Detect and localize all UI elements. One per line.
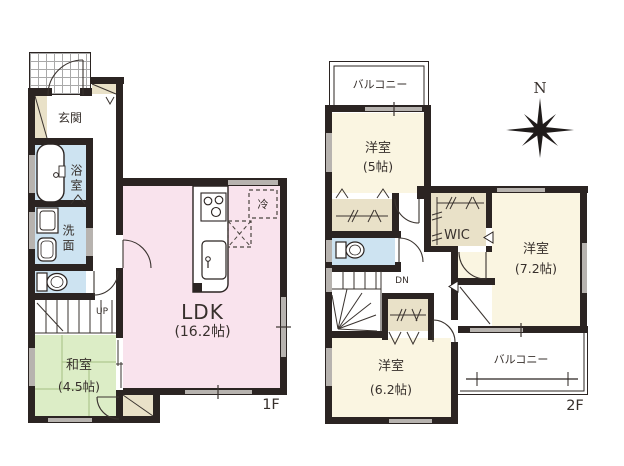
door-opening-ldk — [116, 235, 123, 268]
window — [365, 107, 422, 111]
label-stairs-dn: DN — [390, 276, 414, 287]
door-opening-washroom — [86, 228, 93, 256]
label-yoshitsu5-size: (5帖) — [334, 159, 422, 175]
wall-segment — [325, 265, 401, 272]
label-balcony-top: バルコニー — [334, 78, 426, 91]
window — [29, 155, 35, 193]
wall-segment — [424, 186, 431, 252]
room-yoshitsu72 — [492, 193, 580, 326]
label-yoshitsu5-name: 洋室 — [336, 140, 420, 157]
label-floor-2f: 2F — [558, 398, 592, 414]
label-floor-1f: 1F — [254, 397, 288, 413]
floor-plan: 玄関 浴室 洗面 和室 (4.5帖) LDK (16.2帖) UP 冷 1F バ… — [0, 0, 624, 466]
window — [326, 268, 332, 292]
label-ldk-name: LDK — [150, 301, 255, 323]
label-yoshitsu62-name: 洋室 — [349, 358, 433, 375]
wall-segment — [428, 293, 434, 340]
label-stairs-up: UP — [90, 307, 114, 318]
window — [326, 133, 332, 172]
label-fridge: 冷 — [249, 190, 277, 218]
room-yoshitsu72-nook — [458, 252, 492, 278]
label-yoshitsu62-size: (6.2帖) — [345, 382, 437, 398]
wall-segment — [451, 278, 495, 285]
label-washroom: 洗面 — [60, 214, 77, 264]
wall-segment — [80, 88, 92, 96]
storage-diagonal — [458, 285, 492, 326]
window — [29, 212, 35, 249]
label-yoshitsu72-name: 洋室 — [494, 241, 578, 258]
wall-segment — [28, 138, 92, 145]
window — [582, 243, 587, 293]
window — [48, 418, 92, 422]
window — [185, 390, 252, 395]
room-toilet-2f — [332, 238, 395, 265]
washitsu-storage — [123, 395, 153, 416]
stairs-2f — [332, 271, 381, 331]
label-wic: WIC — [431, 228, 483, 243]
shoe-cabinet — [35, 96, 47, 138]
room-toilet-1f — [35, 271, 86, 293]
wall-segment — [395, 262, 401, 272]
window — [281, 297, 286, 357]
compass-star — [506, 98, 574, 158]
wall-segment — [28, 88, 52, 96]
label-bathroom: 浴室 — [68, 156, 85, 202]
label-ldk-size: (16.2帖) — [150, 324, 255, 340]
wall-segment — [280, 178, 287, 395]
window — [389, 419, 432, 423]
room-yoshitsu62 — [332, 338, 451, 417]
window — [326, 240, 332, 262]
wall-segment — [325, 331, 388, 338]
hall-closet — [92, 84, 116, 94]
window — [29, 348, 35, 386]
room-washitsu — [35, 335, 116, 416]
wall-segment — [382, 293, 434, 299]
wall-segment — [486, 246, 492, 252]
label-genkan: 玄関 — [50, 110, 90, 125]
closet-yoshitsu5 — [332, 199, 392, 231]
window — [326, 348, 332, 386]
label-compass-n: N — [530, 80, 550, 97]
label-yoshitsu72-size: (7.2帖) — [490, 261, 582, 277]
wall-segment — [325, 231, 401, 238]
window — [470, 328, 523, 332]
window — [228, 180, 278, 185]
wall-segment — [28, 264, 92, 271]
window — [497, 188, 545, 192]
label-balcony-bottom: バルコニー — [475, 353, 567, 366]
label-washitsu-size: (4.5帖) — [35, 379, 123, 395]
wall-segment — [486, 186, 492, 228]
wall-segment — [28, 293, 95, 300]
closet-yoshitsu62 — [388, 299, 428, 331]
label-washitsu-name: 和室 — [37, 357, 121, 374]
wall-segment — [424, 105, 431, 199]
wall-segment — [451, 342, 458, 424]
